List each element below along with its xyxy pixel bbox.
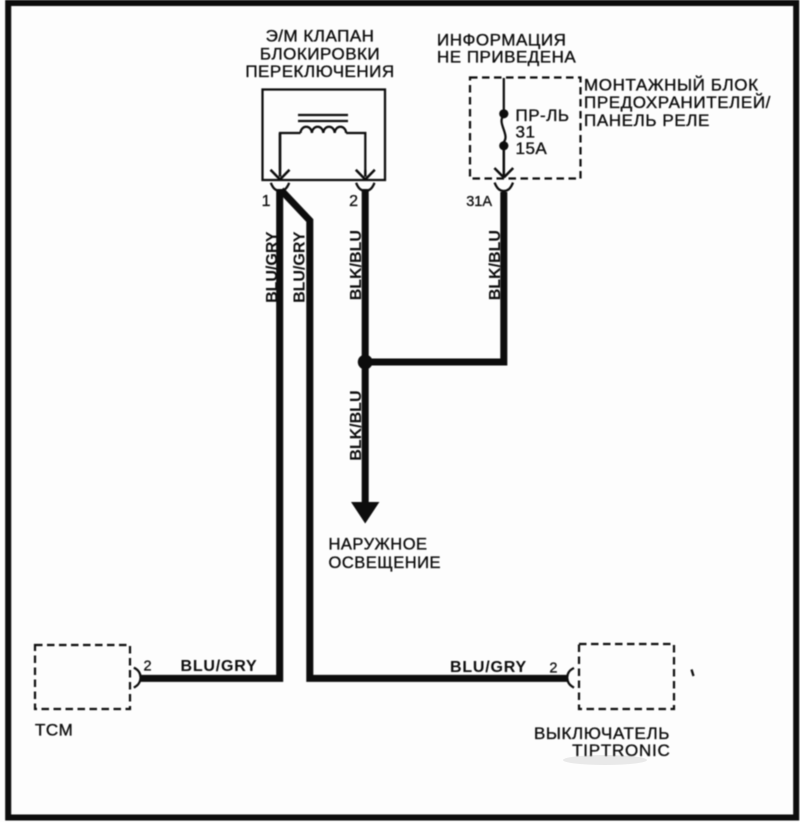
svg-text:Э/М КЛАПАН: Э/М КЛАПАН	[266, 27, 375, 46]
svg-text:BLU/GRY: BLU/GRY	[450, 659, 527, 676]
svg-text:1: 1	[262, 193, 271, 210]
svg-text:BLK/BLU: BLK/BLU	[348, 390, 365, 460]
svg-text:ПАНЕЛЬ РЕЛЕ: ПАНЕЛЬ РЕЛЕ	[584, 111, 710, 130]
svg-text:2: 2	[144, 659, 152, 675]
svg-text:BLU/GRY: BLU/GRY	[264, 231, 281, 303]
svg-text:2: 2	[349, 193, 358, 210]
svg-text:TCM: TCM	[35, 721, 73, 740]
svg-text:ОСВЕЩЕНИЕ: ОСВЕЩЕНИЕ	[329, 554, 442, 572]
svg-text:15А: 15А	[516, 139, 548, 158]
svg-text:БЛОКИРОВКИ: БЛОКИРОВКИ	[260, 44, 380, 63]
svg-text:2: 2	[549, 661, 557, 677]
svg-text:ПРЕДОХРАНИТЕЛЕЙ/: ПРЕДОХРАНИТЕЛЕЙ/	[584, 93, 771, 112]
svg-text:НАРУЖНОЕ: НАРУЖНОЕ	[329, 536, 428, 554]
svg-text:BLK/BLU: BLK/BLU	[348, 230, 365, 300]
svg-text:ПЕРЕКЛЮЧЕНИЯ: ПЕРЕКЛЮЧЕНИЯ	[245, 62, 394, 81]
svg-text:ВЫКЛЮЧАТЕЛЬ: ВЫКЛЮЧАТЕЛЬ	[534, 724, 670, 743]
svg-text:НЕ ПРИВЕДЕНА: НЕ ПРИВЕДЕНА	[437, 47, 576, 66]
svg-text:BLU/GRY: BLU/GRY	[291, 231, 308, 303]
svg-text:МОНТАЖНЫЙ БЛОК: МОНТАЖНЫЙ БЛОК	[584, 76, 759, 95]
svg-text:31А: 31А	[466, 194, 492, 210]
svg-text:BLU/GRY: BLU/GRY	[181, 658, 258, 675]
svg-text:TIPTRONIC: TIPTRONIC	[572, 741, 670, 760]
svg-text:BLK/BLU: BLK/BLU	[487, 230, 504, 300]
